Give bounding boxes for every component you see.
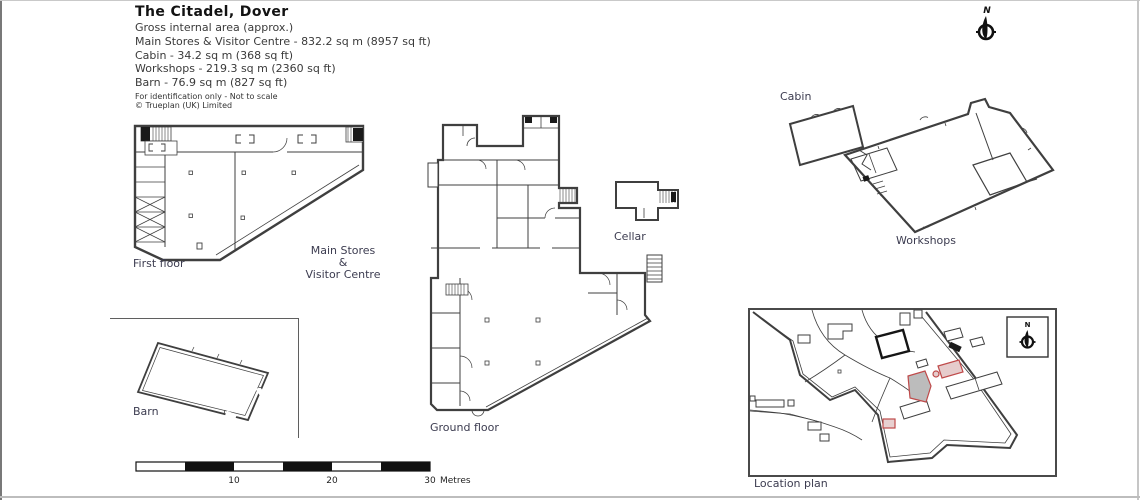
cellar-plan-drawing	[608, 170, 688, 228]
scale-bar: 10 20 30 Metres	[130, 458, 500, 488]
scale-tick-20: 20	[326, 476, 338, 486]
cabin-label: Cabin	[780, 91, 811, 103]
location-north-label: N	[1025, 321, 1031, 329]
north-compass-icon: N	[966, 2, 1006, 48]
scale-tick-10: 10	[228, 476, 240, 486]
cellar-label: Cellar	[614, 231, 646, 243]
copyright-text: © Trueplan (UK) Limited	[135, 101, 431, 110]
stairs-hatch-left	[446, 284, 468, 295]
stairs-top-left	[141, 127, 171, 141]
location-plan-box: N	[748, 308, 1057, 477]
page-edge-right	[1137, 0, 1139, 500]
ground-floor-label: Ground floor	[430, 422, 499, 434]
site-buildings	[750, 310, 1002, 441]
page-edge-bottom	[0, 496, 1140, 498]
area-line-main-stores: Main Stores & Visitor Centre - 832.2 sq …	[135, 35, 431, 49]
stairs-block-wing	[647, 255, 662, 282]
page-edge-top	[0, 0, 1140, 1]
main-stores-label: Main Stores & Visitor Centre	[293, 245, 393, 281]
location-plan-drawing: N	[750, 310, 1055, 475]
disclaimer-text: For identification only - Not to scale	[135, 92, 431, 101]
first-floor-label: First floor	[133, 258, 185, 270]
barn-label: Barn	[133, 406, 159, 418]
location-north-box: N	[1007, 317, 1048, 357]
north-label: N	[983, 6, 991, 16]
location-plan-label: Location plan	[754, 478, 828, 490]
area-line-cabin: Cabin - 34.2 sq m (368 sq ft)	[135, 49, 431, 63]
cabin-workshops-drawing	[775, 88, 1065, 248]
floorplan-sheet: The Citadel, Dover Gross internal area (…	[0, 0, 1140, 500]
ground-floor-plan-drawing	[420, 108, 695, 443]
stairs-top-right	[346, 127, 363, 142]
workshops-label: Workshops	[896, 235, 956, 247]
dark-building	[876, 330, 909, 358]
scale-unit: Metres	[440, 476, 471, 486]
subtitle: Gross internal area (approx.)	[135, 21, 431, 35]
area-line-workshops: Workshops - 219.3 sq m (2360 sq ft)	[135, 62, 431, 76]
workshops-outline	[845, 99, 1053, 232]
header-block: The Citadel, Dover Gross internal area (…	[135, 3, 431, 110]
area-line-barn: Barn - 76.9 sq m (827 sq ft)	[135, 76, 431, 90]
page-title: The Citadel, Dover	[135, 3, 431, 21]
scale-tick-30: 30	[424, 476, 436, 486]
page-edge-left	[0, 0, 2, 500]
